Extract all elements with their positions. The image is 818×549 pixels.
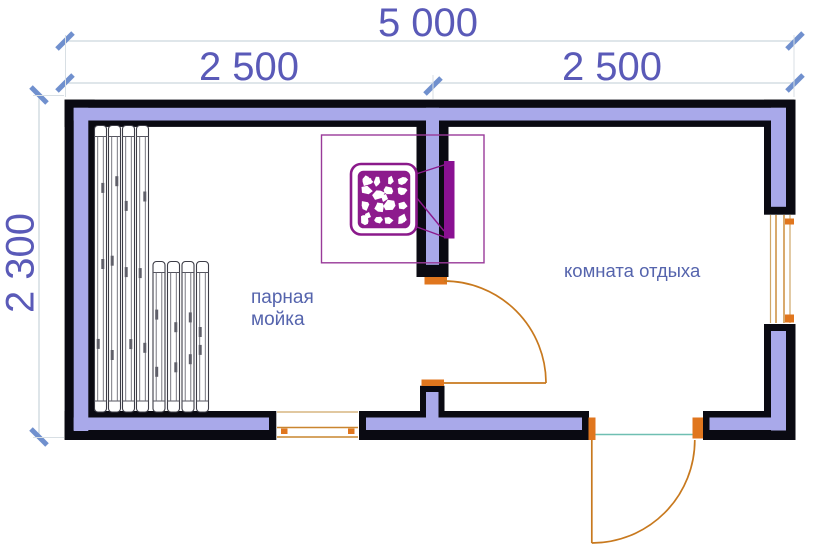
svg-text:2 500: 2 500 bbox=[199, 45, 299, 89]
svg-text:2 500: 2 500 bbox=[562, 45, 662, 89]
svg-text:мойка: мойка bbox=[251, 309, 305, 330]
svg-text:5 000: 5 000 bbox=[378, 1, 478, 45]
svg-text:комната отдыха: комната отдыха bbox=[564, 260, 701, 281]
svg-text:2 300: 2 300 bbox=[0, 213, 43, 313]
svg-text:парная: парная bbox=[251, 287, 314, 308]
